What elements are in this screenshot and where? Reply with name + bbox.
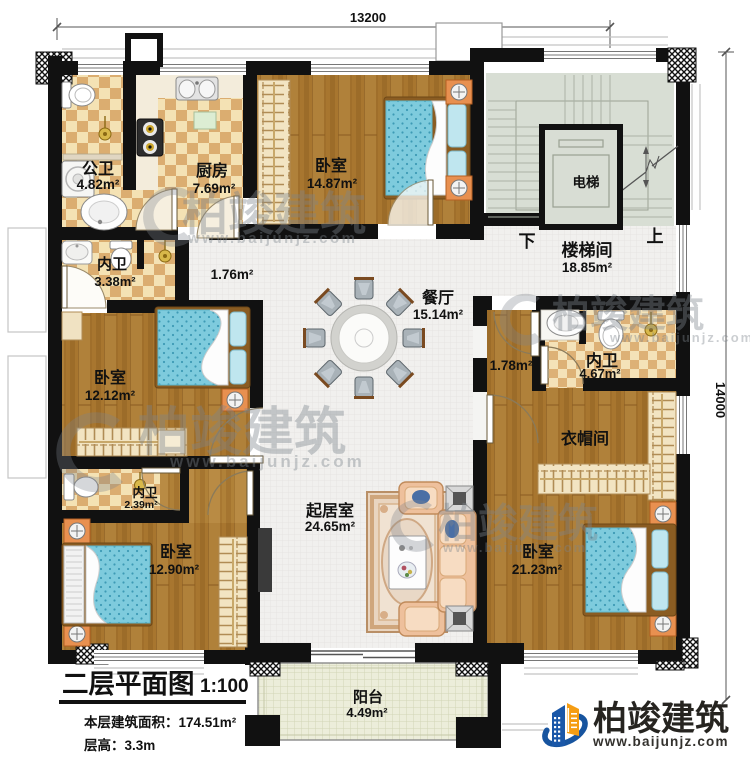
- svg-text:www.baijunjz.com: www.baijunjz.com: [592, 734, 729, 749]
- svg-text:24.65m²: 24.65m²: [305, 519, 356, 534]
- svg-text:柏竣建筑: 柏竣建筑: [593, 699, 729, 738]
- svg-text:www.baijunjz.com: www.baijunjz.com: [442, 540, 587, 555]
- svg-text:楼梯间: 楼梯间: [562, 240, 613, 260]
- svg-text:卧室: 卧室: [94, 368, 126, 387]
- svg-text:14.87m²: 14.87m²: [307, 176, 358, 191]
- svg-text:www.baijunjz.com: www.baijunjz.com: [169, 452, 365, 471]
- svg-text:厨房: 厨房: [196, 161, 228, 180]
- svg-text:12.12m²: 12.12m²: [85, 388, 136, 403]
- svg-text:1.76m²: 1.76m²: [211, 267, 254, 282]
- svg-text:卧室: 卧室: [522, 542, 554, 561]
- svg-text:21.23m²: 21.23m²: [512, 562, 563, 577]
- svg-text:电梯: 电梯: [573, 174, 601, 190]
- svg-text:内卫: 内卫: [132, 485, 158, 500]
- svg-text:卧室: 卧室: [315, 156, 347, 175]
- svg-text:餐厅: 餐厅: [421, 288, 454, 307]
- svg-text:14000: 14000: [713, 382, 728, 418]
- svg-text:下: 下: [519, 232, 536, 251]
- svg-text:3.38m²: 3.38m²: [94, 274, 136, 289]
- svg-text:衣帽间: 衣帽间: [561, 429, 609, 448]
- svg-text:18.85m²: 18.85m²: [562, 260, 613, 275]
- svg-text:本层建筑面积：174.51m²: 本层建筑面积：174.51m²: [84, 714, 237, 730]
- svg-text:1:100: 1:100: [200, 676, 249, 697]
- svg-text:内卫: 内卫: [97, 255, 127, 273]
- svg-text:卧室: 卧室: [160, 542, 192, 561]
- svg-text:阳台: 阳台: [353, 688, 383, 706]
- svg-text:1.78m²: 1.78m²: [490, 358, 533, 373]
- svg-text:层高：3.3m: 层高：3.3m: [84, 737, 155, 753]
- svg-text:4.82m²: 4.82m²: [77, 177, 120, 192]
- svg-text:13200: 13200: [350, 10, 386, 25]
- svg-text:上: 上: [647, 227, 664, 246]
- svg-text:2.39m²: 2.39m²: [124, 499, 158, 511]
- svg-text:www.baijunjz.com: www.baijunjz.com: [187, 230, 357, 247]
- svg-text:www.baijunjz.com: www.baijunjz.com: [609, 330, 750, 345]
- svg-text:二层平面图: 二层平面图: [62, 669, 195, 699]
- svg-text:4.49m²: 4.49m²: [346, 705, 388, 720]
- svg-text:4.67m²: 4.67m²: [579, 366, 621, 381]
- svg-text:7.69m²: 7.69m²: [193, 181, 236, 196]
- svg-text:起居室: 起居室: [305, 501, 354, 520]
- svg-text:公卫: 公卫: [82, 160, 114, 178]
- svg-text:12.90m²: 12.90m²: [149, 562, 200, 577]
- svg-text:15.14m²: 15.14m²: [413, 307, 464, 322]
